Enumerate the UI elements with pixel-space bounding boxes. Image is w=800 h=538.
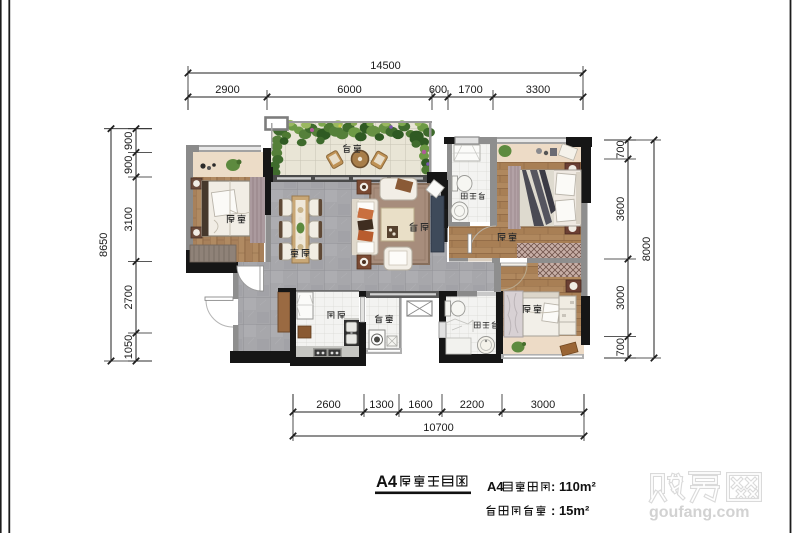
- svg-text:3000: 3000: [615, 286, 627, 310]
- svg-text:2900: 2900: [215, 84, 239, 96]
- svg-text:1300: 1300: [369, 399, 393, 411]
- svg-text:1050: 1050: [123, 335, 135, 359]
- svg-text:2700: 2700: [123, 285, 135, 309]
- svg-text:1600: 1600: [408, 399, 432, 411]
- svg-text:700: 700: [615, 338, 627, 356]
- svg-text:10700: 10700: [423, 422, 454, 434]
- svg-text:: 15m²: : 15m²: [551, 503, 590, 518]
- svg-text:14500: 14500: [370, 60, 401, 72]
- svg-text:goufang.com: goufang.com: [649, 504, 749, 521]
- svg-text:3300: 3300: [526, 84, 550, 96]
- svg-text:3000: 3000: [531, 399, 555, 411]
- svg-text:A4: A4: [487, 479, 504, 494]
- svg-text:900: 900: [123, 132, 135, 150]
- svg-text:3100: 3100: [123, 207, 135, 231]
- svg-text:8000: 8000: [641, 237, 653, 261]
- svg-text:A4: A4: [376, 473, 398, 491]
- svg-text:700: 700: [615, 140, 627, 158]
- svg-text:900: 900: [123, 156, 135, 174]
- svg-text:600: 600: [429, 84, 447, 96]
- svg-text:: 110m²: : 110m²: [551, 479, 596, 494]
- svg-text:1700: 1700: [458, 84, 482, 96]
- svg-text:6000: 6000: [337, 84, 361, 96]
- svg-text:3600: 3600: [615, 197, 627, 221]
- svg-text:2600: 2600: [316, 399, 340, 411]
- svg-text:2200: 2200: [460, 399, 484, 411]
- svg-text:8650: 8650: [98, 233, 110, 257]
